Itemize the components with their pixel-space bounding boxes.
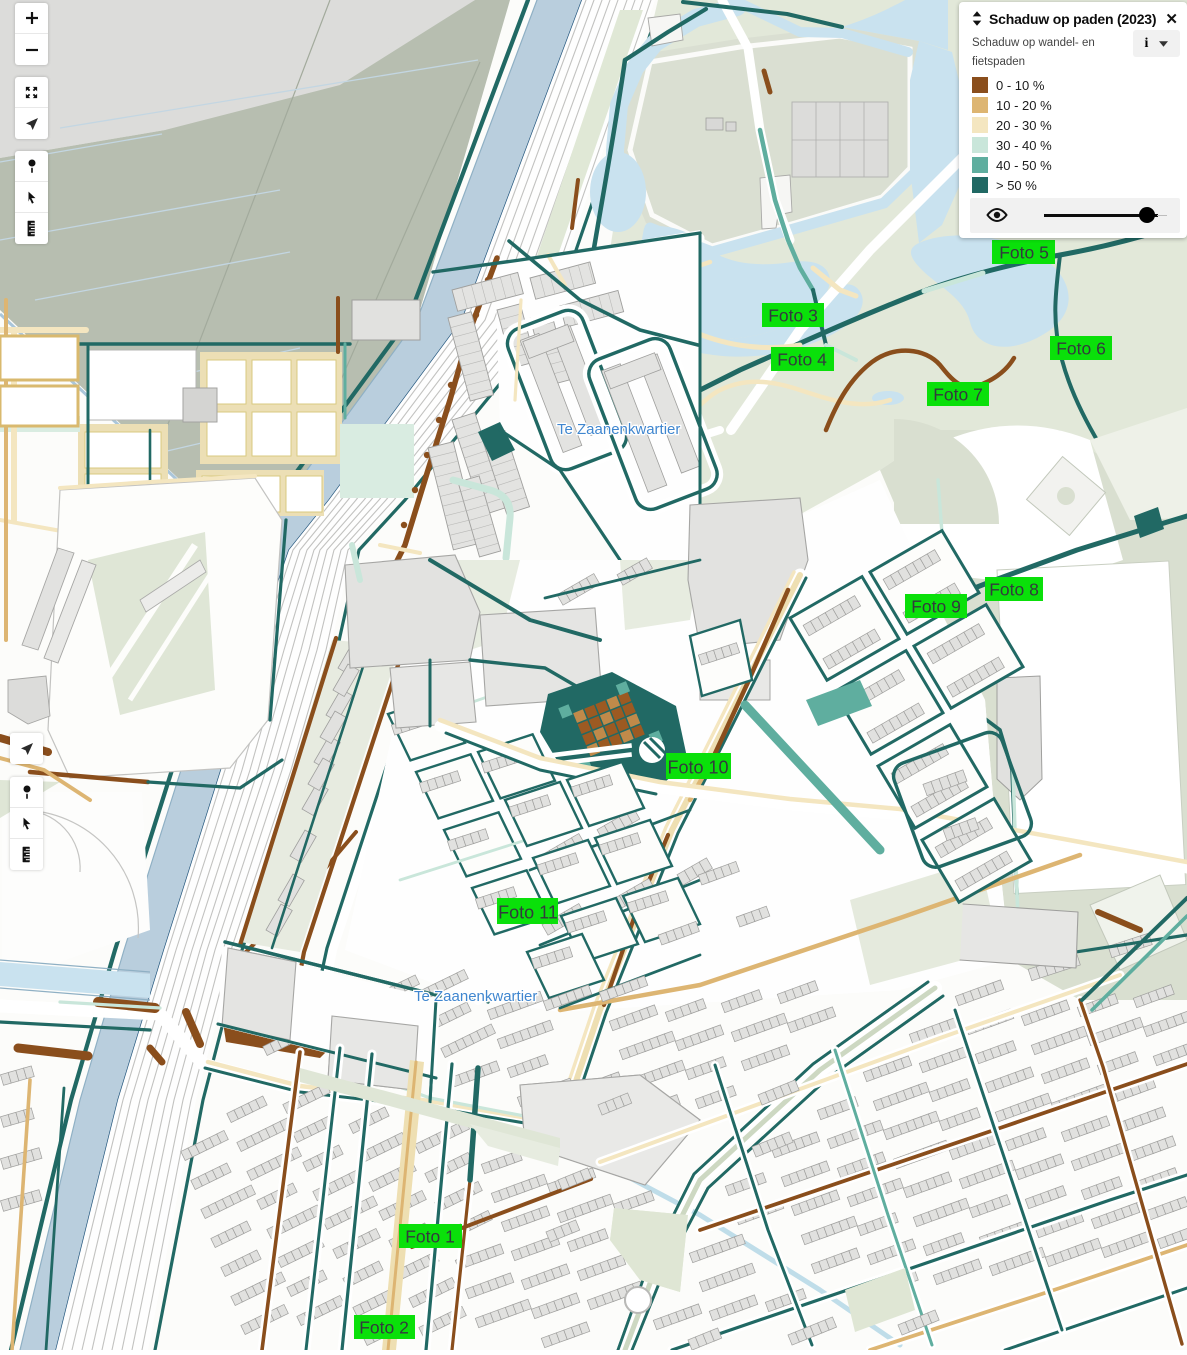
svg-text:Foto 1: Foto 1	[405, 1227, 455, 1247]
svg-text:Foto 3: Foto 3	[768, 306, 818, 326]
svg-text:Foto 7: Foto 7	[933, 385, 983, 405]
svg-text:Foto 2: Foto 2	[359, 1318, 409, 1338]
svg-text:Te Zaanenkwartier: Te Zaanenkwartier	[557, 421, 680, 438]
svg-text:Te Zaanenkwartier: Te Zaanenkwartier	[414, 988, 537, 1005]
svg-text:Foto 4: Foto 4	[777, 350, 827, 370]
svg-text:Foto 10: Foto 10	[667, 758, 728, 778]
svg-text:Foto 11: Foto 11	[498, 903, 558, 923]
svg-text:Foto 8: Foto 8	[989, 580, 1039, 600]
svg-text:Foto 5: Foto 5	[999, 243, 1049, 263]
svg-text:Foto 9: Foto 9	[911, 597, 961, 617]
svg-text:Foto 6: Foto 6	[1056, 339, 1106, 359]
